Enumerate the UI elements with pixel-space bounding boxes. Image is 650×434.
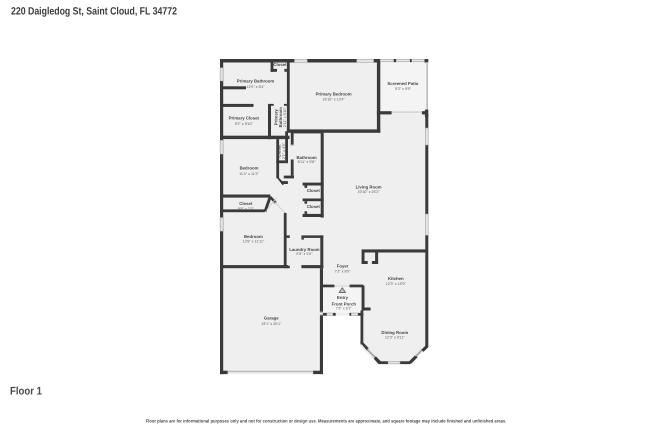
- svg-text:Foyer: Foyer: [337, 264, 349, 269]
- svg-text:Closet: Closet: [307, 204, 321, 209]
- svg-text:Screened Patio: Screened Patio: [387, 81, 418, 86]
- svg-text:12'8" x 11'11": 12'8" x 11'11": [243, 239, 265, 243]
- svg-text:12'3" x 16'9": 12'3" x 16'9": [386, 282, 407, 286]
- svg-text:Kitchen: Kitchen: [388, 276, 404, 281]
- svg-text:8'11" x 9'8": 8'11" x 9'8": [298, 160, 317, 164]
- svg-text:11'4" x 11'2": 11'4" x 11'2": [239, 172, 259, 176]
- svg-text:19'10" x 26'2": 19'10" x 26'2": [357, 190, 380, 194]
- svg-text:Laundry Room: Laundry Room: [289, 247, 319, 252]
- svg-text:19'1" x 20'1": 19'1" x 20'1": [261, 322, 282, 326]
- svg-text:Primary Bathroom: Primary Bathroom: [237, 79, 275, 84]
- svg-text:9'3" x 9'9": 9'3" x 9'9": [395, 87, 412, 91]
- svg-text:7'2" x 5'1": 7'2" x 5'1": [336, 307, 353, 311]
- svg-text:8'8" x 2'3": 8'8" x 2'3": [238, 207, 255, 211]
- svg-text:12'5" x 8'4": 12'5" x 8'4": [246, 85, 265, 89]
- svg-text:220 Daigledog St, Saint Cloud,: 220 Daigledog St, Saint Cloud, FL 34772: [11, 6, 177, 18]
- svg-text:Closet: Closet: [307, 188, 321, 193]
- svg-text:Primary Bedroom: Primary Bedroom: [316, 92, 352, 97]
- svg-text:Garage: Garage: [264, 316, 279, 321]
- svg-text:16'10" x 13'4": 16'10" x 13'4": [322, 97, 345, 101]
- svg-text:Closet: Closet: [239, 201, 253, 206]
- svg-text:Dining Room: Dining Room: [381, 330, 408, 335]
- svg-text:Entry: Entry: [337, 295, 349, 300]
- svg-text:9'2" x 9'10": 9'2" x 9'10": [235, 122, 254, 126]
- svg-text:Floor plans are for informatio: Floor plans are for informational purpos…: [146, 418, 507, 423]
- svg-text:2'1" x 4'9": 2'1" x 4'9": [282, 142, 286, 159]
- svg-text:Bedroom: Bedroom: [244, 234, 263, 239]
- svg-text:2'11" x 9'10": 2'11" x 9'10": [283, 107, 287, 128]
- svg-text:Closet: Closet: [273, 62, 287, 67]
- svg-text:Bedroom: Bedroom: [240, 166, 259, 171]
- svg-text:Primary Closet: Primary Closet: [229, 116, 260, 121]
- svg-text:7'2" x 8'5": 7'2" x 8'5": [335, 270, 352, 274]
- svg-text:Floor 1: Floor 1: [10, 385, 42, 397]
- svg-text:6'9" x 5'6": 6'9" x 5'6": [296, 252, 313, 256]
- svg-text:Closet: Closet: [277, 144, 282, 158]
- svg-text:12'3" x 9'11": 12'3" x 9'11": [385, 336, 406, 340]
